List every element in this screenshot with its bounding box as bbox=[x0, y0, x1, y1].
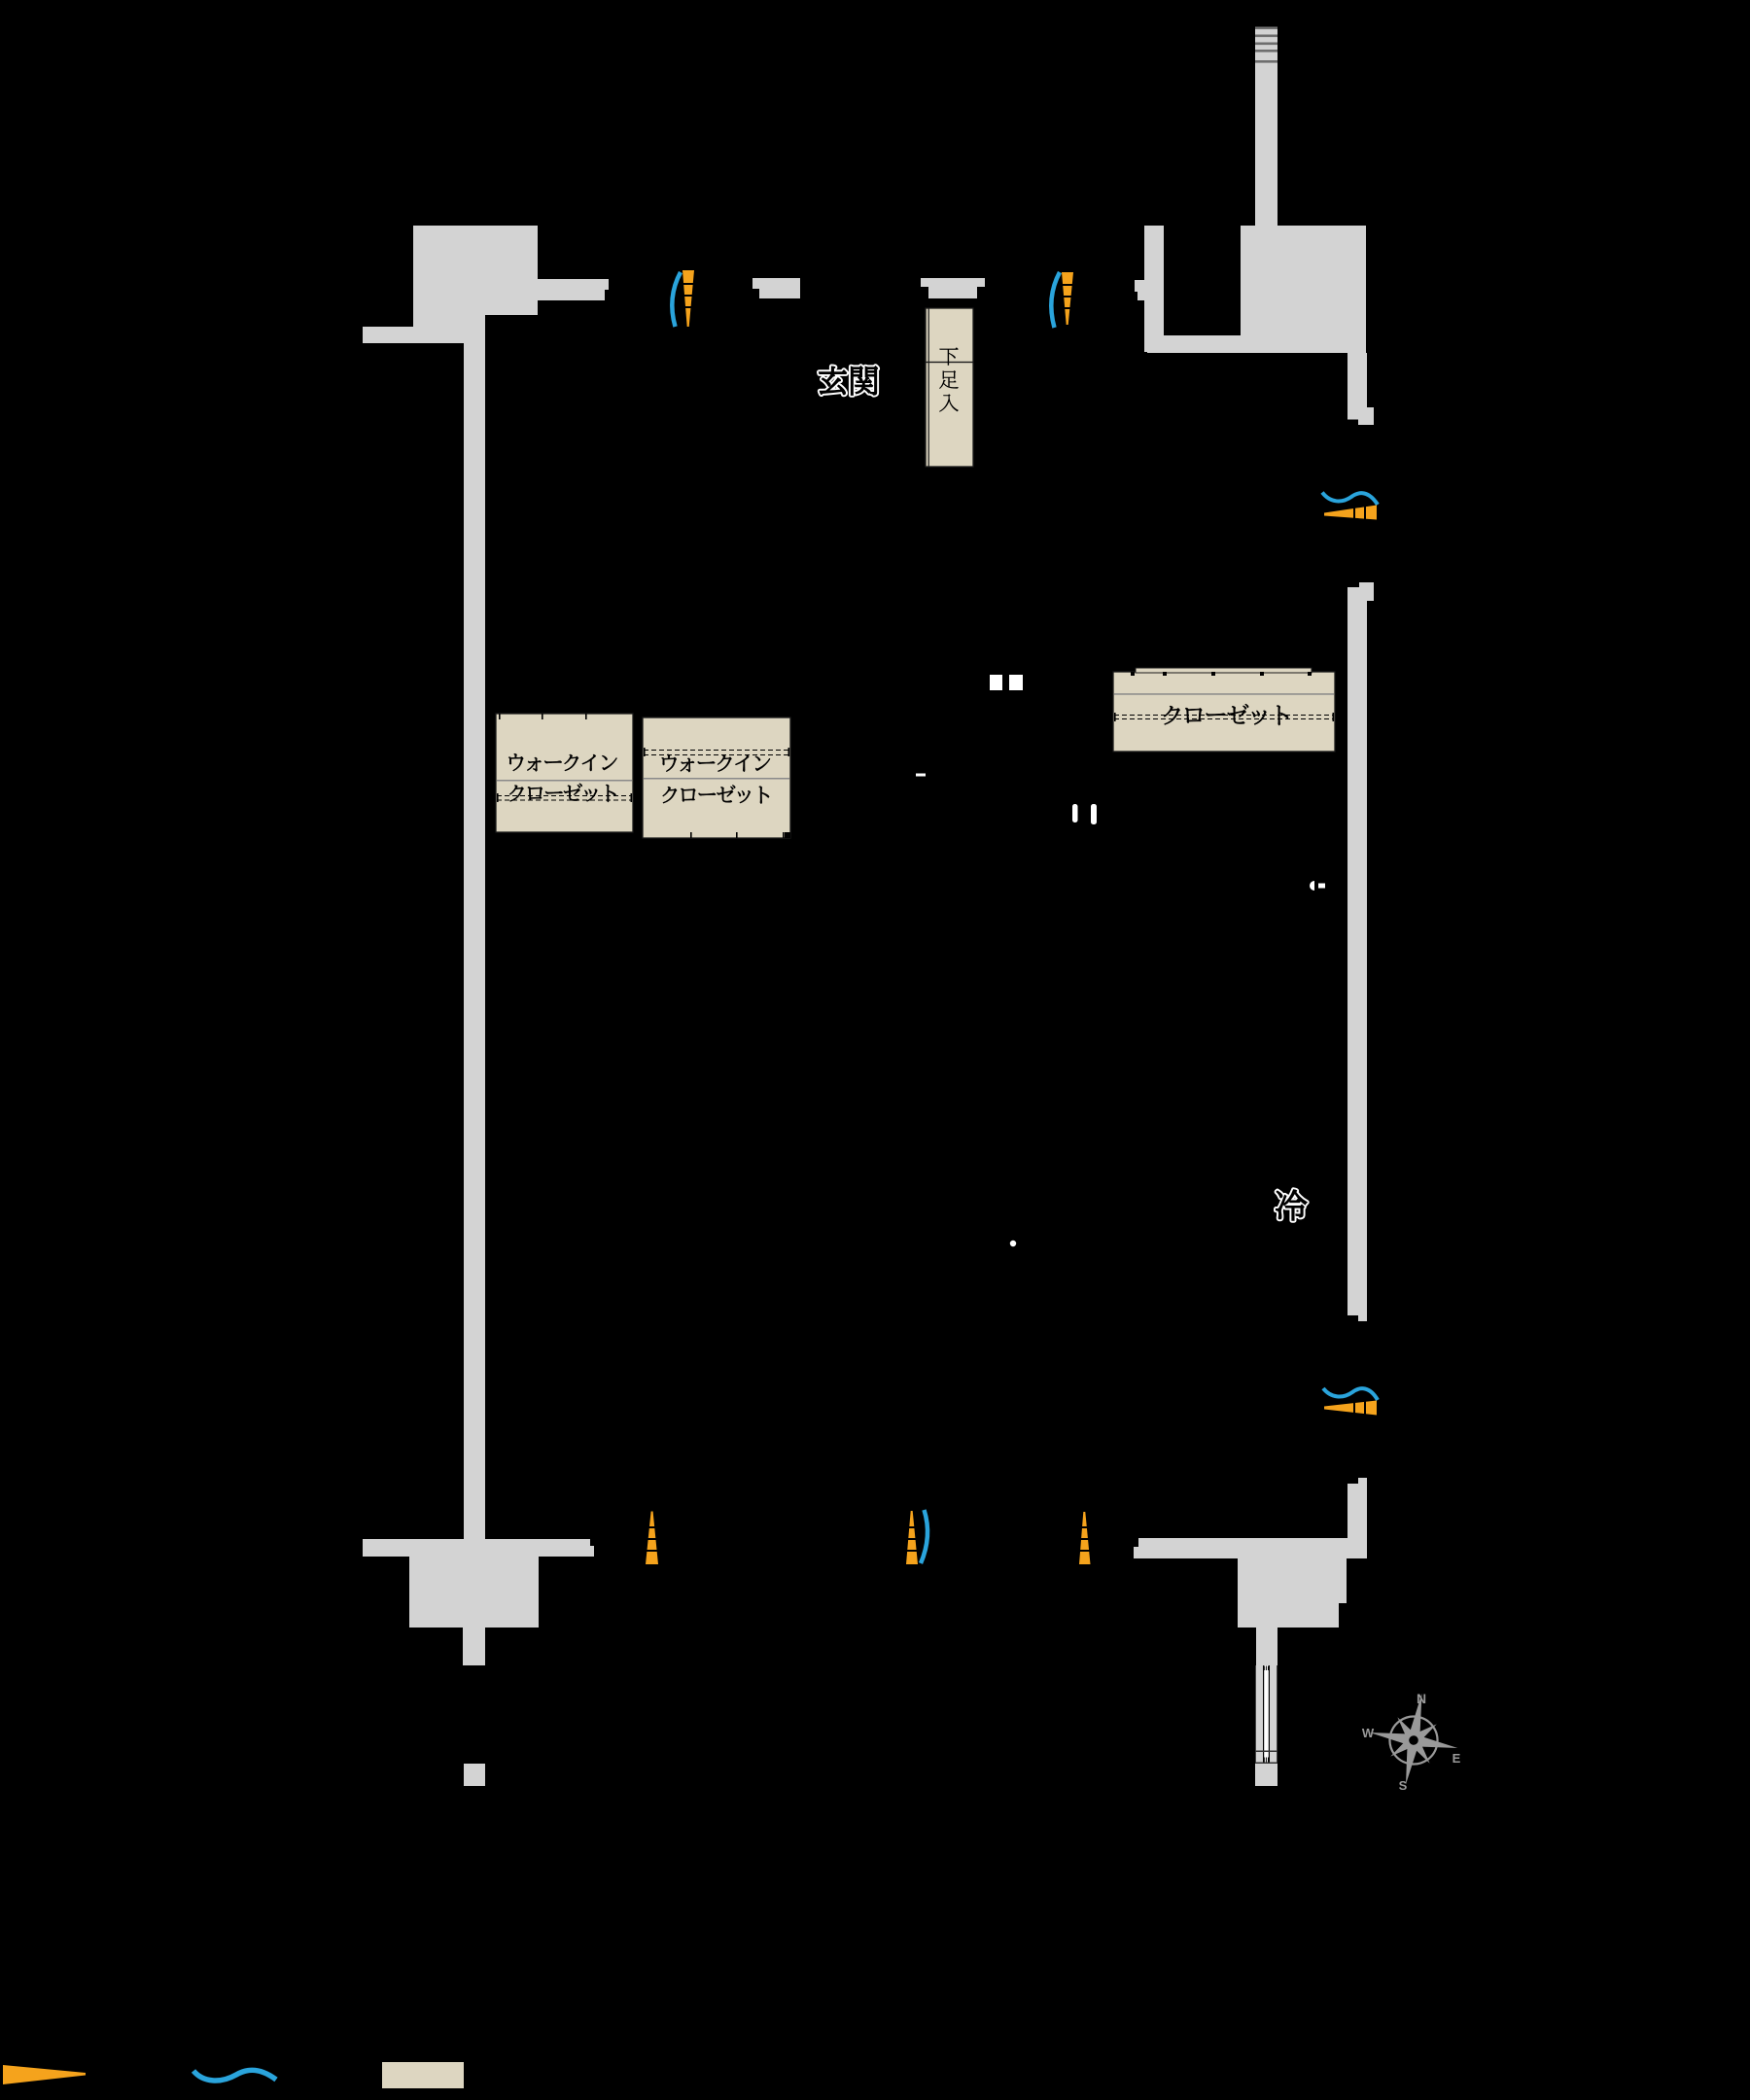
svg-text:S: S bbox=[1399, 1778, 1408, 1793]
svg-text:E: E bbox=[1452, 1751, 1461, 1766]
svg-text:W: W bbox=[1362, 1726, 1375, 1740]
svg-text:N: N bbox=[1417, 1691, 1426, 1706]
